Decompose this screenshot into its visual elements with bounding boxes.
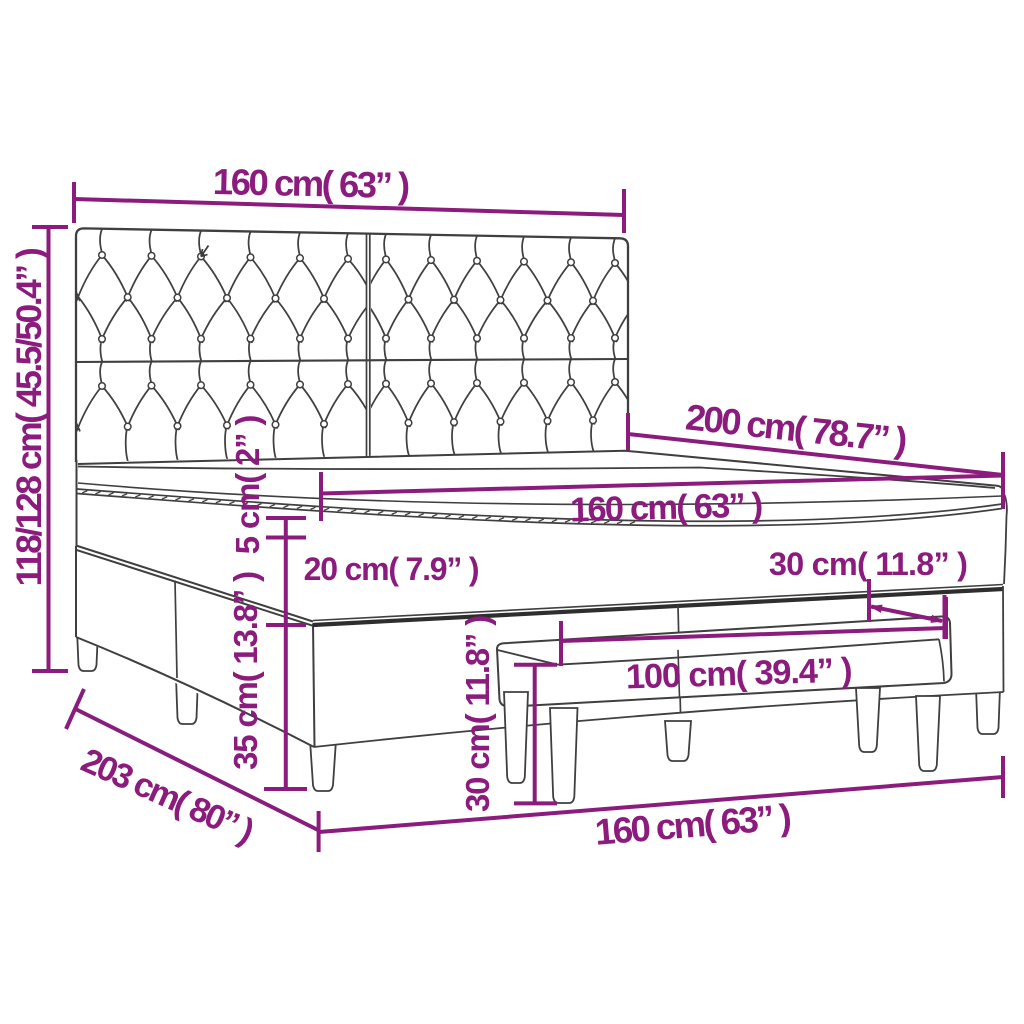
svg-text:35 cm( 13.8” ): 35 cm( 13.8” ) [227, 572, 264, 770]
svg-text:118/128 cm( 45.5/50.4” ): 118/128 cm( 45.5/50.4” ) [9, 248, 49, 586]
svg-text:100 cm( 39.4” ): 100 cm( 39.4” ) [625, 651, 852, 696]
svg-text:160 cm( 63” ): 160 cm( 63” ) [570, 486, 763, 529]
svg-text:30 cm( 11.8” ): 30 cm( 11.8” ) [769, 546, 967, 582]
svg-text:160 cm( 63” ): 160 cm( 63” ) [212, 161, 409, 206]
svg-text:5 cm( 2” ): 5 cm( 2” ) [229, 416, 266, 555]
svg-text:30 cm( 11.8” ): 30 cm( 11.8” ) [459, 616, 496, 812]
svg-text:20 cm( 7.9” ): 20 cm( 7.9” ) [304, 551, 479, 587]
